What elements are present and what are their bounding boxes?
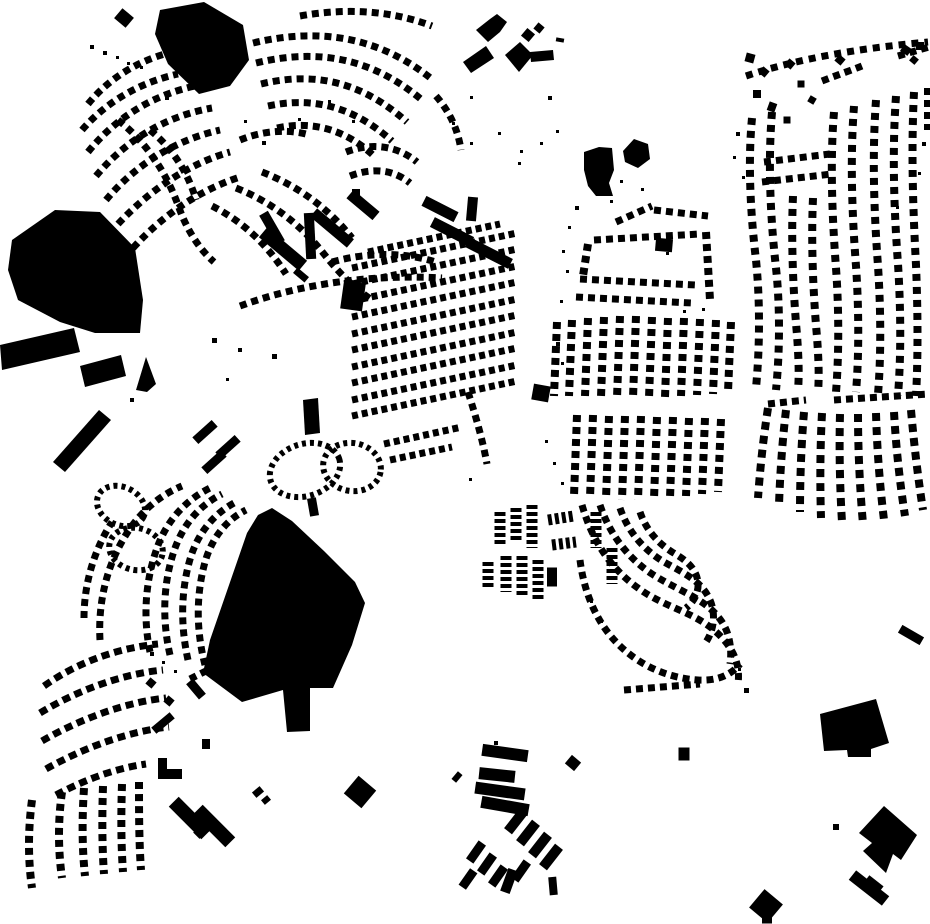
mid-building-tall: [584, 147, 614, 196]
mid-building-arrow: [623, 139, 650, 168]
house-row: [697, 319, 700, 395]
house-row: [552, 542, 576, 545]
building-dot: [562, 250, 565, 253]
building: [114, 8, 134, 28]
map-viewport: [0, 0, 930, 924]
house-row: [352, 365, 517, 400]
building-dot: [556, 342, 560, 346]
building-dot: [600, 620, 603, 623]
house-row: [670, 417, 673, 498]
building-dot: [262, 141, 266, 145]
southeast-building-2: [859, 806, 917, 873]
house-row: [585, 318, 588, 396]
house-row: [576, 297, 692, 303]
house-row: [352, 299, 517, 334]
building-dot: [568, 226, 571, 229]
building: [849, 870, 889, 905]
building: [201, 450, 226, 474]
building: [340, 281, 366, 312]
building: [478, 767, 515, 783]
building: [477, 852, 497, 875]
building-dot: [244, 120, 247, 123]
house-row: [728, 322, 731, 392]
building-footprint-map: [0, 0, 930, 924]
house-loop: [90, 478, 151, 534]
building-dot: [470, 142, 473, 145]
building-dot: [127, 62, 130, 65]
building: [474, 782, 525, 801]
building: [145, 677, 156, 688]
house-row: [858, 414, 863, 524]
house-row: [911, 410, 923, 510]
house-row: [832, 112, 838, 392]
west-wedge: [136, 357, 156, 392]
building-dot: [554, 386, 557, 389]
house-row: [300, 11, 432, 26]
house-row: [582, 505, 738, 684]
building-dot: [116, 56, 119, 59]
building-dot: [702, 308, 705, 311]
building-dot: [744, 688, 749, 693]
building: [784, 117, 791, 124]
building: [565, 755, 581, 771]
house-row: [346, 147, 417, 162]
building-dot: [520, 150, 523, 153]
building: [293, 267, 309, 282]
building: [753, 90, 761, 98]
house-loop: [263, 434, 348, 506]
house-row: [352, 332, 517, 367]
building-dot: [452, 122, 455, 125]
building: [548, 877, 558, 896]
house-row: [768, 400, 806, 404]
building-dot: [226, 378, 229, 381]
house-row: [352, 381, 517, 416]
building: [531, 384, 551, 403]
house-row: [840, 414, 842, 522]
house-loop: [105, 523, 167, 575]
building-dot: [610, 200, 613, 203]
building: [346, 190, 379, 220]
building-dot: [590, 600, 593, 603]
building: [762, 915, 772, 924]
house-row: [770, 112, 779, 390]
house-row: [268, 103, 392, 141]
building-dot: [666, 252, 669, 255]
house-row: [352, 282, 517, 317]
building: [259, 227, 307, 270]
building-dot: [361, 201, 364, 204]
building: [807, 95, 817, 105]
house-row: [876, 413, 884, 520]
house-row: [617, 316, 620, 398]
house-row: [624, 684, 700, 690]
house-row: [83, 788, 85, 876]
house-row: [88, 52, 172, 104]
house-row: [633, 316, 636, 398]
west-slab-2: [80, 355, 126, 387]
house-row: [102, 786, 104, 874]
building-dot: [561, 482, 564, 485]
building-dot: [575, 206, 579, 210]
house-row: [350, 171, 410, 183]
house-row: [548, 516, 574, 520]
house-row: [100, 486, 182, 640]
building-dot: [545, 440, 548, 443]
building-dot: [118, 262, 121, 265]
building: [655, 238, 673, 252]
house-row: [792, 196, 798, 390]
house-row: [390, 447, 452, 460]
building-dot: [162, 661, 165, 664]
mid-top-building-3: [505, 42, 533, 72]
building-dot: [556, 130, 559, 133]
house-row: [638, 416, 641, 500]
house-row: [594, 234, 700, 240]
house-row: [601, 317, 604, 397]
building: [547, 568, 557, 587]
house-row: [649, 317, 652, 398]
building-dot: [733, 156, 736, 159]
building-dot: [918, 172, 921, 175]
house-row: [606, 416, 609, 499]
house-row: [46, 727, 169, 769]
house-row: [820, 413, 822, 518]
building-dot: [494, 741, 498, 745]
building-dot: [212, 338, 217, 343]
building-dot: [105, 242, 109, 246]
building: [465, 237, 513, 269]
house-row: [779, 410, 786, 505]
building: [261, 795, 271, 805]
building-dot: [560, 300, 563, 303]
building: [898, 625, 924, 645]
house-row: [468, 392, 487, 464]
house-row: [874, 100, 880, 394]
building-dot: [922, 142, 926, 146]
building-dot: [553, 462, 556, 465]
building-dot: [178, 89, 181, 92]
house-row: [59, 792, 62, 878]
building-dot: [328, 100, 331, 103]
building-dot: [620, 180, 623, 183]
house-row: [384, 427, 462, 444]
building-dot: [352, 120, 355, 123]
building-dot: [272, 354, 277, 359]
house-row: [686, 418, 689, 496]
building-dot: [566, 270, 569, 273]
house-row: [569, 320, 572, 396]
house-row: [750, 118, 759, 388]
building-dot: [96, 282, 99, 285]
building: [459, 868, 478, 890]
large-building-north-park: [155, 2, 249, 94]
house-row: [822, 66, 862, 81]
house-row: [800, 412, 804, 512]
building-dot: [140, 66, 143, 69]
building: [767, 101, 778, 112]
building: [481, 744, 528, 762]
building: [798, 81, 805, 88]
house-row: [681, 318, 684, 396]
house-row: [352, 315, 517, 350]
building: [192, 420, 217, 444]
building-dot: [298, 118, 301, 121]
house-row: [583, 244, 588, 276]
building-dot: [683, 310, 686, 313]
house-row: [616, 206, 652, 222]
house-row: [718, 419, 721, 492]
house-row: [812, 198, 818, 392]
southeast-building-1: [820, 699, 889, 757]
house-row: [590, 415, 593, 498]
building: [466, 197, 478, 222]
house-row: [436, 96, 461, 150]
building: [451, 771, 462, 783]
building-dot: [736, 132, 740, 136]
building-dot: [150, 652, 154, 656]
mid-top-building-1: [476, 14, 507, 42]
building: [466, 840, 486, 863]
building: [421, 196, 458, 222]
building-dot: [165, 96, 169, 100]
house-row: [29, 800, 32, 888]
building-dot: [518, 162, 521, 165]
house-row: [665, 318, 668, 397]
house-row: [139, 782, 141, 870]
west-rod: [53, 410, 111, 472]
house-row: [852, 106, 858, 392]
building-dot: [641, 188, 644, 191]
building: [252, 786, 264, 798]
house-row: [554, 322, 557, 396]
building-dot: [738, 668, 741, 671]
building: [556, 37, 565, 42]
large-building-west-park: [8, 210, 143, 333]
building: [916, 42, 924, 50]
building: [744, 52, 755, 63]
house-row: [654, 417, 657, 499]
building: [186, 678, 206, 699]
mid-top-building-2: [463, 46, 494, 73]
building-dot: [469, 478, 472, 481]
house-row: [654, 210, 708, 216]
building: [521, 28, 535, 42]
building-dot: [90, 45, 94, 49]
building-dot: [742, 176, 745, 179]
building: [202, 739, 210, 749]
building: [533, 22, 544, 33]
building-dot: [352, 190, 356, 194]
house-row: [622, 416, 625, 500]
house-row: [758, 408, 768, 498]
house-row: [580, 279, 696, 285]
house-row: [44, 644, 158, 686]
building-dot: [561, 362, 564, 365]
mid-rod: [303, 398, 320, 435]
building-dot: [896, 206, 899, 209]
house-row: [702, 418, 705, 494]
house-row: [706, 232, 710, 300]
l-shaped-block: [158, 758, 182, 779]
building-dot: [540, 142, 543, 145]
house-row: [352, 348, 517, 383]
house-row: [121, 784, 123, 872]
house-row: [352, 266, 517, 301]
house-row: [894, 412, 905, 516]
house-row: [574, 415, 577, 496]
house-row: [894, 96, 900, 395]
building: [833, 824, 839, 830]
house-row: [42, 698, 166, 741]
building-dot: [130, 398, 134, 402]
house-row: [913, 92, 918, 396]
house-row: [240, 131, 306, 140]
mid-top-building-4: [530, 50, 554, 62]
building-dot: [103, 51, 107, 55]
building: [909, 55, 919, 65]
building-dot: [498, 132, 501, 135]
large-building-central: [203, 508, 365, 732]
house-row: [256, 56, 422, 100]
west-slab-1: [0, 328, 80, 370]
building-dot: [238, 348, 242, 352]
building-dot: [548, 96, 552, 100]
building: [344, 776, 376, 808]
house-row: [713, 320, 716, 394]
building: [307, 497, 319, 516]
building: [679, 748, 690, 761]
building-dot: [470, 96, 473, 99]
building-dot: [174, 670, 177, 673]
